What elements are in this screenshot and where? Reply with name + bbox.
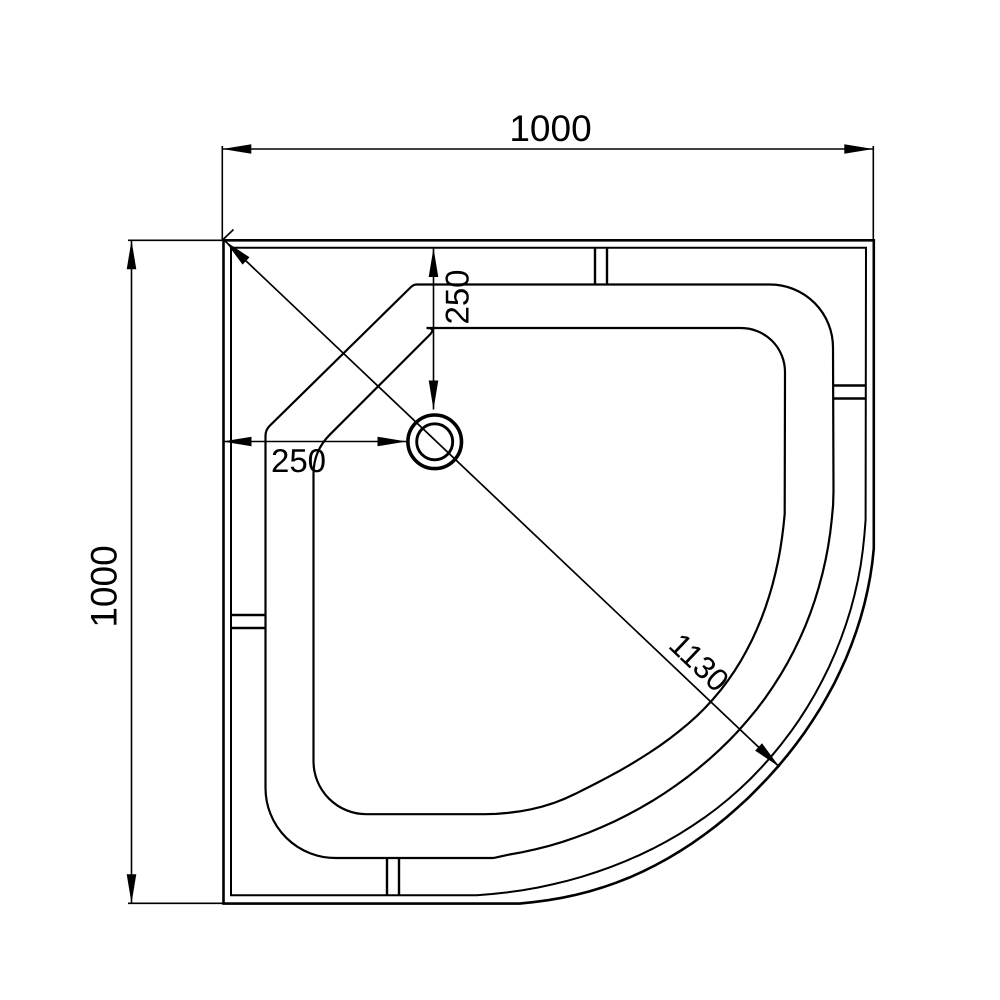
svg-text:1000: 1000 bbox=[83, 545, 124, 627]
svg-text:250: 250 bbox=[271, 442, 326, 479]
svg-text:250: 250 bbox=[438, 269, 475, 324]
svg-text:1000: 1000 bbox=[509, 108, 591, 149]
